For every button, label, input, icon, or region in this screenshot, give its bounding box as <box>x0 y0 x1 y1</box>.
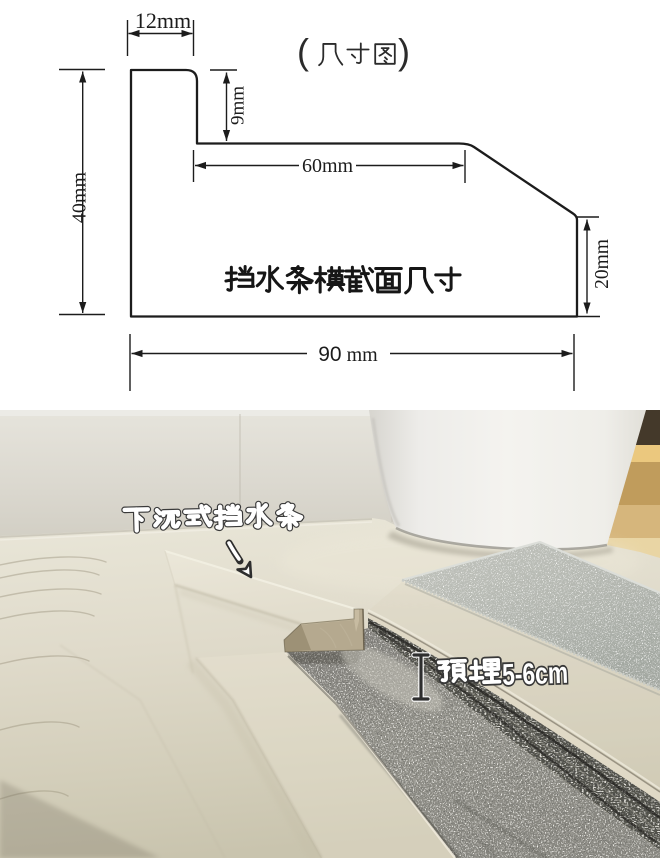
svg-text:40mm: 40mm <box>69 172 91 224</box>
svg-text:12mm: 12mm <box>135 8 191 33</box>
svg-text:20mm: 20mm <box>592 239 613 289</box>
svg-text:60mm: 60mm <box>302 155 354 177</box>
svg-text:9mm: 9mm <box>228 86 249 125</box>
svg-text:5-6cm: 5-6cm <box>502 657 569 692</box>
svg-text:(: ( <box>297 31 309 72</box>
svg-text:): ) <box>398 31 410 72</box>
svg-text:90 mm: 90 mm <box>318 343 378 366</box>
